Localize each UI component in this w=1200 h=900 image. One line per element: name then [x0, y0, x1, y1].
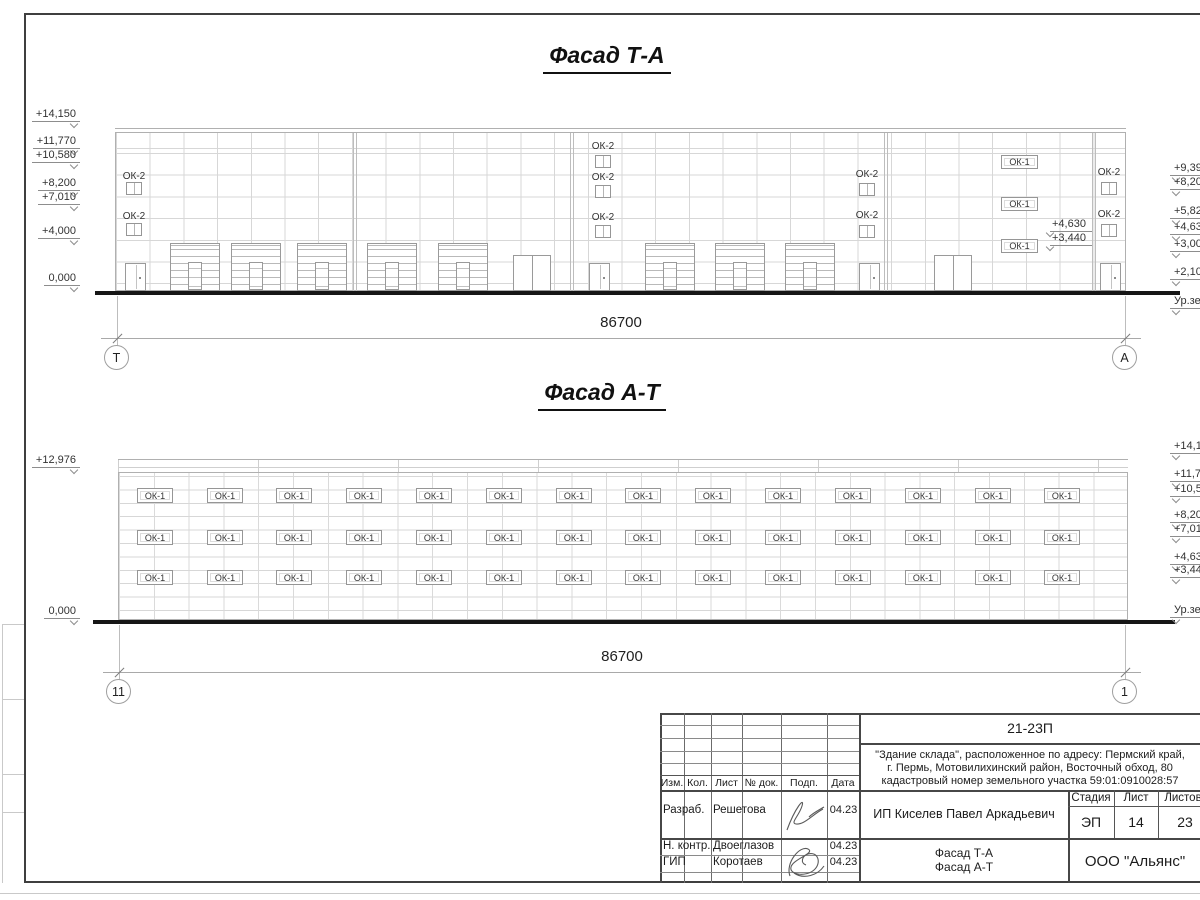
- window-ok1: ОК-1: [625, 570, 661, 585]
- window-ok1: ОК-1: [346, 488, 382, 503]
- level-mark: Ур.зем: [1170, 604, 1200, 618]
- address-line: "Здание склада", расположенное по адресу…: [862, 749, 1198, 761]
- sheet-value: 14: [1114, 814, 1158, 830]
- axis-bubble: А: [1112, 345, 1137, 370]
- double-door: [934, 255, 972, 291]
- facade2-parapet: [118, 459, 1128, 473]
- window-ok2: [859, 225, 875, 238]
- window-ok1: ОК-1: [207, 488, 243, 503]
- door: [125, 263, 146, 291]
- garage-wicket-door: [315, 262, 329, 290]
- sheets-value: 23: [1160, 814, 1200, 830]
- frame-bottom: [24, 881, 1200, 883]
- stage-value: ЭП: [1068, 814, 1114, 830]
- col-kol: Кол.: [684, 777, 711, 789]
- level-mark: +11,77: [1170, 468, 1200, 482]
- window-ok1: ОК-1: [276, 488, 312, 503]
- window-ok1: ОК-1: [137, 570, 173, 585]
- facade2-title: Фасад А-Т: [482, 379, 722, 411]
- axis-bubble: 11: [106, 679, 131, 704]
- window-label: ОК-2: [581, 172, 625, 183]
- window-ok1: ОК-1: [765, 530, 801, 545]
- role-name: Коротаев: [713, 856, 763, 868]
- window-ok1: ОК-1: [765, 488, 801, 503]
- window-ok1: ОК-1: [276, 570, 312, 585]
- window-ok1: ОК-1: [625, 488, 661, 503]
- garage-wicket-door: [663, 262, 677, 290]
- level-mark: +7,010: [24, 191, 80, 205]
- level-mark: +4,000: [24, 225, 80, 239]
- window-ok1: ОК-1: [556, 570, 592, 585]
- window-ok1: ОК-1: [416, 488, 452, 503]
- window-label: ОК-2: [1087, 209, 1131, 220]
- sheet-edge-line: [0, 893, 1200, 894]
- garage-wicket-door: [249, 262, 263, 290]
- sheets-label: Листов: [1158, 792, 1200, 804]
- level-mark: +8,20: [1170, 176, 1200, 190]
- window-ok1: ОК-1: [1001, 155, 1038, 169]
- doc-number: 21-23П: [860, 720, 1200, 736]
- window-ok2: [595, 225, 611, 238]
- window-ok1: ОК-1: [1001, 239, 1038, 253]
- garage-wicket-door: [803, 262, 817, 290]
- window-label: ОК-2: [112, 171, 156, 182]
- window-ok2: [595, 155, 611, 168]
- level-annotation: +4,630: [1050, 218, 1092, 232]
- window-ok1: ОК-1: [346, 570, 382, 585]
- level-mark: +3,44: [1170, 564, 1200, 578]
- window-label: ОК-2: [112, 211, 156, 222]
- door: [1100, 263, 1121, 291]
- window-ok2: [595, 185, 611, 198]
- level-mark: +4,63: [1170, 221, 1200, 235]
- window-ok1: ОК-1: [486, 570, 522, 585]
- door: [589, 263, 610, 291]
- facade1-ground-line: [95, 291, 1180, 295]
- col-izm: Изм.: [659, 777, 685, 789]
- window-ok1: ОК-1: [905, 530, 941, 545]
- sheet-label: Лист: [1114, 792, 1158, 804]
- door: [859, 263, 880, 291]
- window-ok2: [859, 183, 875, 196]
- garage-wicket-door: [456, 262, 470, 290]
- window-ok1: ОК-1: [416, 570, 452, 585]
- window-ok1: ОК-1: [556, 488, 592, 503]
- window-label: ОК-2: [581, 141, 625, 152]
- garage-door: [297, 243, 347, 291]
- role: Н. контр.: [663, 840, 710, 852]
- level-mark: +14,150: [24, 108, 80, 122]
- sheet: Фасад Т-А Фасад А-Т 21-23П "З: [0, 0, 1200, 900]
- window-ok1: ОК-1: [556, 530, 592, 545]
- garage-door: [231, 243, 281, 291]
- level-mark: +7,01: [1170, 523, 1200, 537]
- role: ГИП: [663, 856, 686, 868]
- window-label: ОК-2: [1087, 167, 1131, 178]
- window-ok1: ОК-1: [695, 488, 731, 503]
- window-ok1: ОК-1: [695, 530, 731, 545]
- role-name: Двоеглазов: [713, 840, 774, 852]
- window-ok2: [1101, 182, 1117, 195]
- window-ok1: ОК-1: [486, 488, 522, 503]
- role-date: 04.23: [828, 856, 859, 868]
- client-name: ИП Киселев Павел Аркадьевич: [860, 807, 1068, 821]
- drawing-name: Фасад Т-А: [860, 846, 1068, 860]
- level-mark: Ур.зе: [1170, 295, 1200, 309]
- level-mark: +12,976: [24, 454, 80, 468]
- window-ok1: ОК-1: [416, 530, 452, 545]
- window-ok1: ОК-1: [276, 530, 312, 545]
- window-ok1: ОК-1: [137, 530, 173, 545]
- window-ok1: ОК-1: [835, 570, 871, 585]
- window-ok1: ОК-1: [835, 530, 871, 545]
- signature: [783, 792, 827, 837]
- dimension-label: 86700: [572, 648, 672, 665]
- window-ok1: ОК-1: [695, 570, 731, 585]
- margin-divider: [2, 624, 24, 625]
- margin-divider: [2, 699, 24, 700]
- facade1-title: Фасад Т-А: [487, 42, 727, 74]
- role-date: 04.23: [828, 804, 859, 816]
- role-date: 04.23: [828, 840, 859, 852]
- garage-door: [438, 243, 488, 291]
- margin-divider: [2, 774, 24, 775]
- level-mark: +11,770: [24, 135, 80, 149]
- dimension-line: [101, 338, 1141, 339]
- company-name: ООО "Альянс": [1070, 853, 1200, 870]
- window-ok1: ОК-1: [1001, 197, 1038, 211]
- garage-door: [715, 243, 765, 291]
- frame-top: [24, 13, 1200, 15]
- facade1-pilaster: [353, 133, 357, 291]
- axis-bubble: 1: [1112, 679, 1137, 704]
- level-mark: +10,580: [24, 149, 80, 163]
- window-ok1: ОК-1: [1044, 488, 1080, 503]
- dimension-line: [103, 672, 1141, 673]
- window-ok1: ОК-1: [625, 530, 661, 545]
- role: Разраб.: [663, 804, 704, 816]
- window-ok1: ОК-1: [975, 488, 1011, 503]
- window-ok1: ОК-1: [1044, 530, 1080, 545]
- dimension-label: 86700: [571, 314, 671, 331]
- level-mark: +3,000: [1170, 238, 1200, 252]
- window-ok1: ОК-1: [835, 488, 871, 503]
- col-podp: Подп.: [781, 777, 827, 789]
- level-annotation: +3,440: [1050, 232, 1092, 246]
- window-ok2: [126, 223, 142, 236]
- address-line: кадастровый номер земельного участка 59:…: [862, 775, 1198, 787]
- window-ok1: ОК-1: [905, 488, 941, 503]
- window-label: ОК-2: [581, 212, 625, 223]
- garage-wicket-door: [385, 262, 399, 290]
- facade1-pilaster: [570, 133, 574, 291]
- window-ok1: ОК-1: [1044, 570, 1080, 585]
- level-mark: +4,63: [1170, 551, 1200, 565]
- garage-door: [367, 243, 417, 291]
- window-label: ОК-2: [845, 210, 889, 221]
- window-ok1: ОК-1: [975, 530, 1011, 545]
- stage-label: Стадия: [1068, 792, 1114, 804]
- garage-door: [170, 243, 220, 291]
- double-door: [513, 255, 551, 291]
- axis-bubble: Т: [104, 345, 129, 370]
- window-ok1: ОК-1: [905, 570, 941, 585]
- window-ok2: [126, 182, 142, 195]
- drawing-name: Фасад А-Т: [860, 860, 1068, 874]
- window-ok1: ОК-1: [486, 530, 522, 545]
- margin-divider: [2, 812, 24, 813]
- level-mark: +5,82: [1170, 205, 1200, 219]
- garage-wicket-door: [188, 262, 202, 290]
- col-data: Дата: [827, 777, 859, 789]
- window-ok1: ОК-1: [765, 570, 801, 585]
- level-mark: +8,200: [24, 177, 80, 191]
- col-doc: № док.: [742, 777, 781, 789]
- window-ok1: ОК-1: [207, 530, 243, 545]
- garage-wicket-door: [733, 262, 747, 290]
- facade2-ground-line: [93, 620, 1175, 624]
- level-mark: +9,39: [1170, 162, 1200, 176]
- garage-door: [645, 243, 695, 291]
- margin-column-line: [2, 624, 3, 883]
- role-name: Решетова: [713, 804, 766, 816]
- level-mark: +8,20: [1170, 509, 1200, 523]
- level-mark: 0,000: [24, 605, 80, 619]
- address-line: г. Пермь, Мотовилихинский район, Восточн…: [862, 762, 1198, 774]
- window-ok1: ОК-1: [207, 570, 243, 585]
- window-ok1: ОК-1: [975, 570, 1011, 585]
- garage-door: [785, 243, 835, 291]
- window-label: ОК-2: [845, 169, 889, 180]
- window-ok2: [1101, 224, 1117, 237]
- level-mark: +2,10: [1170, 266, 1200, 280]
- signature: [782, 838, 828, 882]
- window-ok1: ОК-1: [137, 488, 173, 503]
- level-mark: 0,000: [24, 272, 80, 286]
- window-ok1: ОК-1: [346, 530, 382, 545]
- col-list: Лист: [711, 777, 742, 789]
- level-mark: +10,58: [1170, 483, 1200, 497]
- level-mark: +14,15: [1170, 440, 1200, 454]
